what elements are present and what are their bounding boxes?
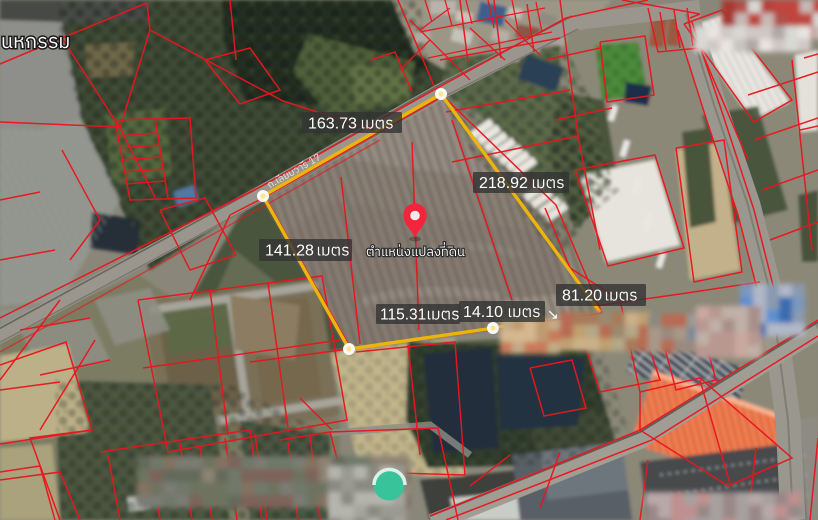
svg-text:163.73: 163.73	[308, 116, 357, 133]
svg-text:218.92: 218.92	[479, 175, 528, 192]
svg-text:115.31: 115.31	[380, 307, 426, 324]
svg-text:↘: ↘	[547, 306, 559, 322]
svg-text:14.10: 14.10	[463, 304, 503, 321]
svg-text:141.28: 141.28	[265, 243, 314, 260]
svg-text:81.20: 81.20	[562, 288, 602, 305]
